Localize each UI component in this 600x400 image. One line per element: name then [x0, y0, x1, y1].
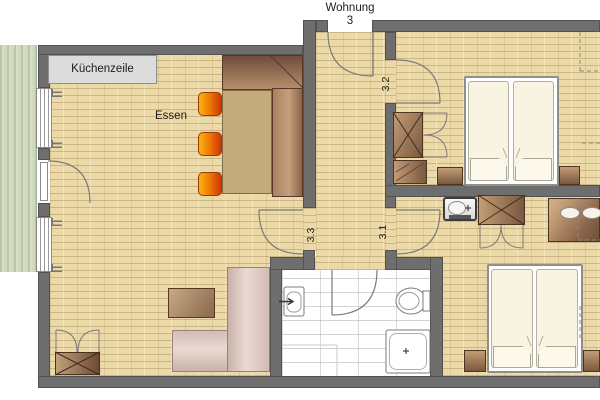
window-1 [36, 88, 52, 148]
wall [38, 376, 600, 388]
wardrobe-bedroom1 [393, 112, 423, 158]
sideboard [55, 352, 100, 375]
wall [430, 257, 443, 377]
nightstand [559, 166, 580, 185]
wall [38, 148, 50, 160]
door-gap-bathroom [315, 257, 385, 270]
wall [270, 257, 282, 377]
washbasin-unit [443, 197, 477, 221]
dining-chair [198, 132, 222, 156]
radiator [51, 264, 62, 272]
apartment-label-line2: 3 [317, 15, 383, 28]
wall [38, 203, 50, 217]
room-number-3-2: 3.2 [373, 71, 399, 97]
nightstand [464, 350, 486, 372]
wall [385, 32, 396, 60]
pillow [470, 158, 507, 181]
apartment-label: Wohnung 3 [317, 2, 383, 27]
radiator [51, 218, 62, 226]
radiator [51, 89, 62, 97]
dresser-bedroom1 [393, 160, 427, 184]
dining-chair [198, 172, 222, 196]
wall [38, 45, 303, 55]
terrace-door-leaf [40, 162, 48, 201]
sofa-section-vertical [227, 267, 270, 372]
wall [372, 20, 600, 32]
dining-bench-side [272, 88, 303, 197]
desk [548, 198, 600, 242]
pillow [493, 346, 531, 368]
coffee-table [168, 288, 215, 318]
dining-bench-back [222, 55, 303, 90]
wall [385, 250, 397, 270]
wall [303, 20, 316, 208]
dining-chair [198, 92, 222, 116]
pillow [538, 346, 576, 368]
terrace [0, 45, 37, 272]
kitchen-unit: Küchenzeile [48, 55, 157, 84]
apartment-label-line1: Wohnung [317, 2, 383, 15]
room-number-3-3: 3.3 [298, 222, 324, 248]
wall [303, 250, 315, 270]
nightstand [437, 167, 463, 185]
wardrobe-bedroom2 [478, 195, 525, 225]
room-number-3-1: 3.1 [370, 219, 396, 245]
radiator [51, 140, 62, 148]
floor-plan: Küchenzeile [0, 0, 600, 400]
sofa-section-horizontal [172, 330, 228, 372]
kitchen-label: Küchenzeile [71, 63, 134, 76]
dining-label: Essen [155, 110, 187, 123]
nightstand [583, 350, 600, 372]
floor-bathroom [282, 270, 430, 377]
pillow [515, 158, 552, 181]
dining-table [222, 90, 272, 194]
wall [38, 272, 50, 388]
window-2 [36, 217, 52, 272]
